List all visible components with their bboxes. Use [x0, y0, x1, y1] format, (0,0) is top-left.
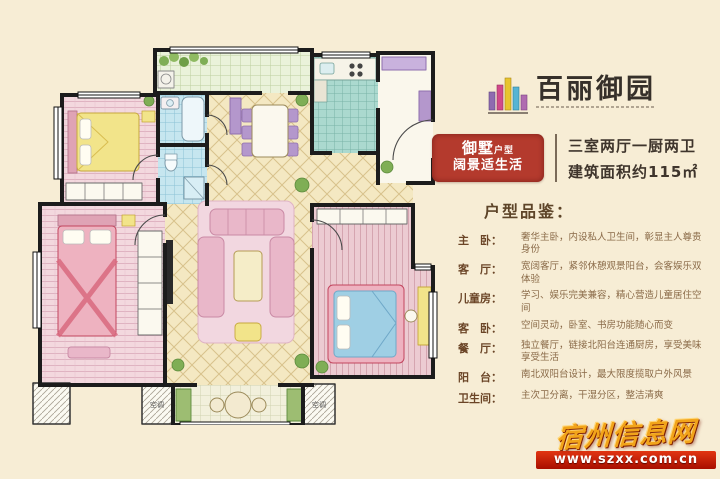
ac-label: 空调 — [312, 400, 326, 409]
bed-bench — [68, 347, 110, 358]
room-desc: 独立餐厅，链接北阳台连通厨房，享受美味享受生活 — [521, 340, 710, 365]
room-desc: 宽阔客厅，紧邻休憩观景阳台，会客娱乐双体验 — [521, 261, 710, 286]
list-item: 客 卧： 空间灵动，卧室、书房功能随心而变 — [458, 320, 710, 336]
badge-title-sub: 户型 — [494, 146, 514, 156]
list-item: 阳 台： 南北双阳台设计，最大限度揽取户外风景 — [458, 369, 710, 385]
badge-row: 御墅户型 阔景适生活 三室两厅一厨两卫 建筑面积约115㎡ — [432, 134, 718, 182]
master-bed — [68, 111, 139, 173]
room-description-list: 主 卧： 奢华主卧，内设私人卫生间，彰显主人尊贵身份 客 厅： 宽阔客厅，紧邻休… — [458, 232, 710, 406]
room-label: 客 卧： — [458, 320, 516, 336]
vertical-divider — [555, 134, 557, 182]
list-item: 儿童房： 学习、娱乐完美兼容，精心营造儿童居住空间 — [458, 290, 710, 315]
room-desc: 主次卫分离，干湿分区，整洁清爽 — [521, 390, 710, 406]
room-desc: 空间灵动，卧室、书房功能随心而变 — [521, 320, 710, 336]
plant-icon — [316, 361, 328, 373]
badge-title-main: 御墅 — [462, 139, 494, 157]
room-label: 餐 厅： — [458, 340, 516, 365]
ac-label: 空调 — [150, 400, 164, 409]
badge-subtitle: 阔景适生活 — [441, 158, 535, 175]
buildings-logo-icon — [488, 76, 528, 118]
type-badge: 御墅户型 阔景适生活 — [432, 134, 544, 181]
tv-icon — [166, 240, 173, 304]
section-title: 户型品鉴： — [484, 198, 718, 222]
logo: 百丽御园 — [488, 76, 718, 122]
list-item: 卫生间： 主次卫分离，干湿分区，整洁清爽 — [458, 390, 710, 406]
floorplan: 空调 空调 — [30, 5, 440, 425]
room-desc: 奢华主卧，内设私人卫生间，彰显主人尊贵身份 — [521, 232, 710, 257]
plant-icon — [144, 96, 154, 106]
master-wardrobe — [66, 183, 142, 200]
layout-specs: 三室两厅一厨两卫 建筑面积约115㎡ — [568, 135, 698, 182]
guest-bed — [328, 285, 404, 363]
room-label: 儿童房： — [458, 290, 516, 315]
list-item: 客 厅： 宽阔客厅，紧邻休憩观景阳台，会客娱乐双体验 — [458, 261, 710, 286]
list-item: 餐 厅： 独立餐厅，链接北阳台连通厨房，享受美味享受生活 — [458, 340, 710, 365]
room-desc: 学习、娱乐完美兼容，精心营造儿童居住空间 — [521, 290, 710, 315]
specs-rooms: 三室两厅一厨两卫 — [568, 135, 698, 156]
specs-area: 建筑面积约115㎡ — [568, 161, 698, 182]
watermark-site-name: 宿州信息网 — [535, 408, 717, 457]
site-watermark: 宿州信息网 www.szxx.com.cn — [536, 413, 716, 469]
room-label: 阳 台： — [458, 369, 516, 385]
list-item: 主 卧： 奢华主卧，内设私人卫生间，彰显主人尊贵身份 — [458, 232, 710, 257]
child-wardrobe — [138, 231, 162, 335]
flyer-page: 空调 空调 — [0, 0, 720, 479]
info-panel: 百丽御园 御墅户型 阔景适生活 三室两厅一厨两卫 建筑面积约115㎡ 户型品鉴：… — [432, 76, 718, 410]
logo-tagline-line — [536, 106, 654, 108]
room-label: 客 厅： — [458, 261, 516, 286]
child-bed — [58, 215, 116, 336]
guest-wardrobe — [317, 209, 407, 224]
logo-name: 百丽御园 — [536, 76, 656, 103]
child-nightstand — [122, 215, 135, 226]
master-nightstand — [142, 111, 155, 122]
room-desc: 南北双阳台设计，最大限度揽取户外风景 — [521, 369, 710, 385]
corridor-floor — [207, 93, 228, 205]
room-label: 主 卧： — [458, 232, 516, 257]
room-label: 卫生间： — [458, 390, 516, 406]
